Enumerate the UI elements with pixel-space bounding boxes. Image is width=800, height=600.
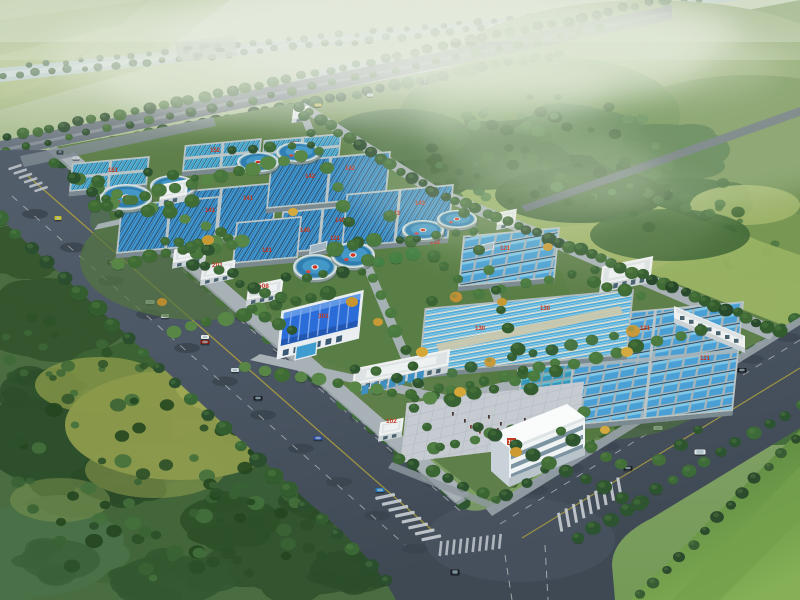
svg-text:121: 121 <box>640 326 651 332</box>
svg-text:121: 121 <box>330 236 341 242</box>
svg-text:140: 140 <box>300 228 311 234</box>
svg-text:301: 301 <box>318 313 329 320</box>
svg-text:141: 141 <box>243 196 254 202</box>
svg-text:151: 151 <box>108 168 119 174</box>
svg-text:130: 130 <box>475 326 486 332</box>
svg-text:130: 130 <box>540 306 551 312</box>
svg-text:141: 141 <box>205 208 216 214</box>
svg-text:102: 102 <box>386 418 397 425</box>
svg-text:121: 121 <box>262 248 273 254</box>
svg-text:142: 142 <box>305 174 316 180</box>
svg-text:152: 152 <box>210 148 221 154</box>
svg-text:121: 121 <box>700 356 711 362</box>
